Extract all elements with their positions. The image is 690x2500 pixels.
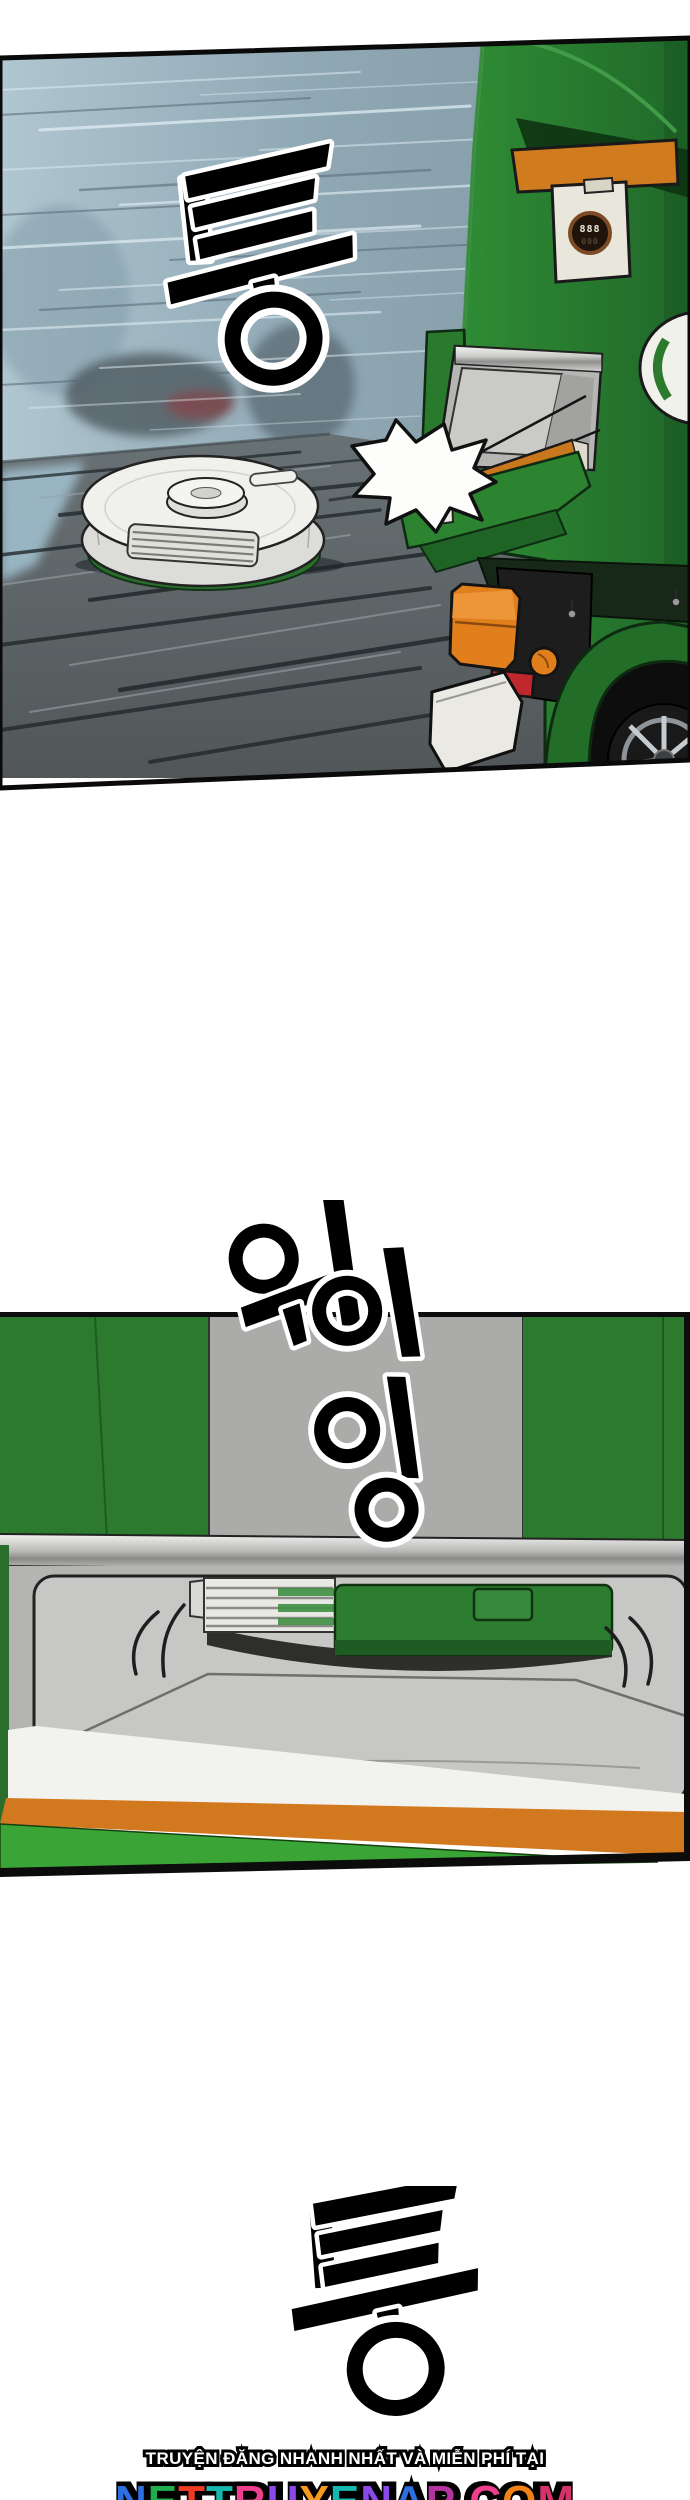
- gauge-digits-dim: 000: [581, 237, 598, 246]
- truck-control-panel: 888 000: [552, 178, 630, 282]
- footer-site-name[interactable]: NETTRUYENAP.COM NETTRUYENAP.COM: [0, 2480, 690, 2500]
- vacuum-lidar: [167, 478, 247, 518]
- panel-1: 888 000: [0, 0, 690, 800]
- truck-gauge: 888 000: [570, 213, 610, 253]
- site-name-colored[interactable]: NETTRUYENAP.COM: [0, 2480, 690, 2500]
- sfx-wiing: [0, 1200, 690, 1580]
- footer-tagline: TRUYỆN ĐĂNG NHANH NHẤT VÀ MIỄN PHÍ TẠI T…: [0, 2444, 690, 2478]
- signal-lamp: [530, 648, 558, 676]
- gauge-digits: 888: [579, 224, 600, 235]
- comic-page: 퉁 위이잉 퉁: [0, 0, 690, 2500]
- footer-promo: TRUYỆN ĐĂNG NHANH NHẤT VÀ MIỄN PHÍ TẠI T…: [0, 2444, 690, 2500]
